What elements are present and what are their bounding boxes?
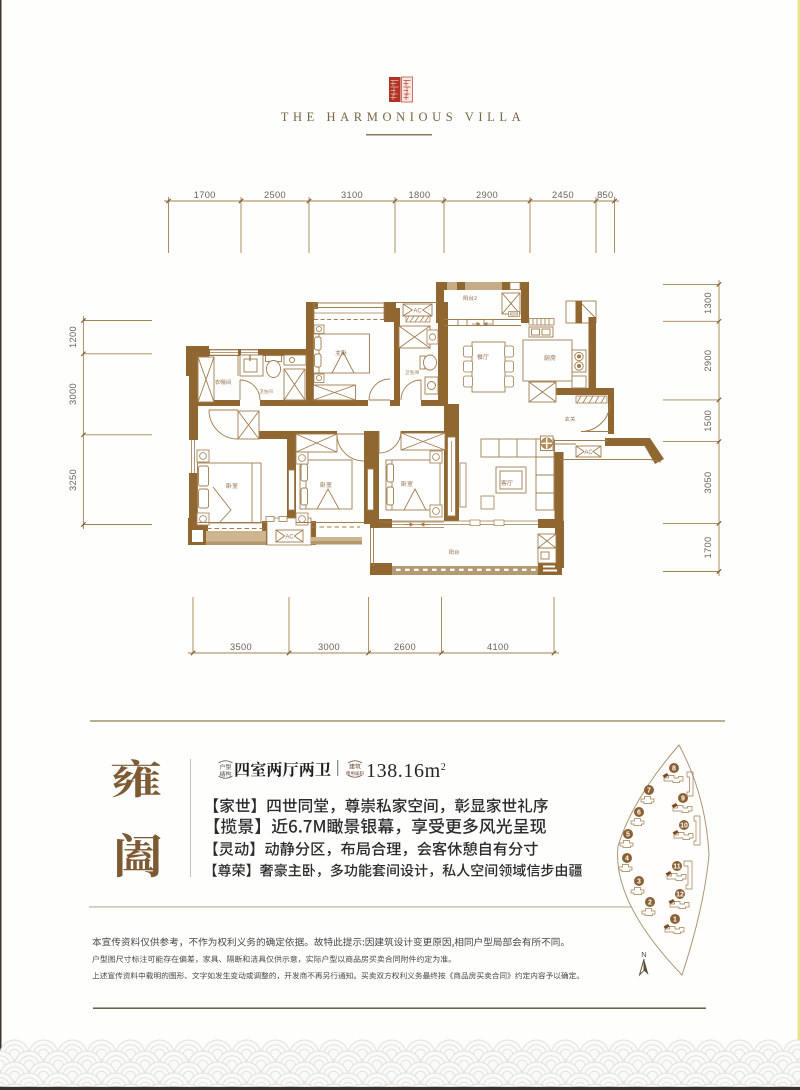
svg-text:2500: 2500 xyxy=(264,190,286,200)
svg-text:5: 5 xyxy=(626,832,630,839)
svg-text:7: 7 xyxy=(647,788,651,795)
svg-text:9: 9 xyxy=(681,796,685,803)
svg-text:138.16m2: 138.16m2 xyxy=(366,760,446,782)
svg-text:3050: 3050 xyxy=(703,472,713,494)
svg-text:AC: AC xyxy=(413,309,422,315)
svg-text:THE HARMONIOUS VILLA: THE HARMONIOUS VILLA xyxy=(281,110,526,124)
svg-text:2600: 2600 xyxy=(394,642,416,652)
svg-text:1: 1 xyxy=(673,917,677,924)
svg-text:3: 3 xyxy=(637,879,641,886)
svg-text:3250: 3250 xyxy=(68,469,78,491)
svg-text:2900: 2900 xyxy=(476,190,498,200)
svg-text:1300: 1300 xyxy=(703,292,713,314)
svg-text:N: N xyxy=(641,950,646,959)
svg-text:6: 6 xyxy=(637,810,641,817)
svg-text:1200: 1200 xyxy=(68,326,78,348)
svg-text:3000: 3000 xyxy=(68,383,78,405)
svg-text:1500: 1500 xyxy=(703,410,713,432)
svg-text:AC: AC xyxy=(584,450,593,456)
svg-text:1800: 1800 xyxy=(409,190,431,200)
svg-text:2: 2 xyxy=(648,900,652,907)
svg-text:8: 8 xyxy=(672,766,676,773)
svg-text:10: 10 xyxy=(680,823,688,830)
svg-text:4: 4 xyxy=(625,856,629,863)
svg-text:3000: 3000 xyxy=(318,642,340,652)
svg-text:2450: 2450 xyxy=(552,190,574,200)
svg-text:3100: 3100 xyxy=(341,190,363,200)
svg-text:AC: AC xyxy=(285,535,294,541)
svg-text:2900: 2900 xyxy=(703,350,713,372)
svg-text:12: 12 xyxy=(676,892,684,899)
svg-text:850: 850 xyxy=(597,190,613,200)
svg-text:11: 11 xyxy=(673,864,681,871)
svg-text:1700: 1700 xyxy=(194,190,216,200)
svg-text:1700: 1700 xyxy=(703,537,713,559)
svg-text:4100: 4100 xyxy=(487,642,509,652)
svg-text:3500: 3500 xyxy=(230,642,252,652)
